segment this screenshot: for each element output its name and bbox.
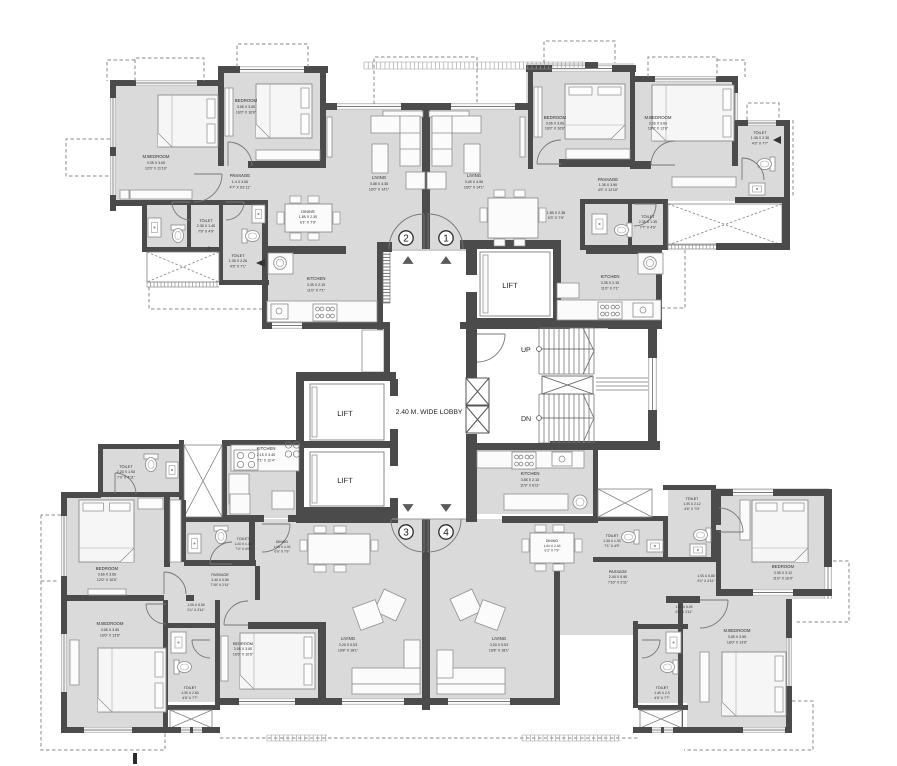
svg-text:10'0" X 13'0": 10'0" X 13'0" xyxy=(727,641,748,645)
svg-text:1.35 X 2.80: 1.35 X 2.80 xyxy=(181,691,198,695)
svg-text:KITCHEN: KITCHEN xyxy=(307,276,326,281)
svg-text:4'6" X 7'0": 4'6" X 7'0" xyxy=(684,507,700,511)
svg-text:2.30 X 1.35: 2.30 X 1.35 xyxy=(603,539,620,543)
svg-text:2.40 X 0.90: 2.40 X 0.90 xyxy=(211,578,228,582)
svg-text:3.05 X 3.95: 3.05 X 3.95 xyxy=(728,635,746,639)
svg-text:6'1" X 2'11": 6'1" X 2'11" xyxy=(697,579,715,583)
svg-text:3.35 X 2.15: 3.35 X 2.15 xyxy=(601,281,619,285)
svg-text:PASSAGE: PASSAGE xyxy=(230,173,250,178)
svg-text:UP: UP xyxy=(521,347,531,354)
svg-text:1.35 X 2.12: 1.35 X 2.12 xyxy=(683,502,700,506)
svg-text:4'3" X 7'1": 4'3" X 7'1" xyxy=(230,264,247,268)
svg-text:2.20 X 1.50: 2.20 X 1.50 xyxy=(117,470,135,474)
svg-text:4'5" X 12'10": 4'5" X 12'10" xyxy=(598,188,619,192)
svg-text:10'0" X 14'1": 10'0" X 14'1" xyxy=(464,186,485,190)
svg-text:3.08 X 4.30: 3.08 X 4.30 xyxy=(370,182,388,186)
svg-text:4'3" X 7'7": 4'3" X 7'7" xyxy=(752,141,769,145)
svg-text:PASSAGE: PASSAGE xyxy=(211,573,229,577)
svg-text:TOILET: TOILET xyxy=(199,218,213,223)
svg-text:10'0" X 12'0": 10'0" X 12'0" xyxy=(648,127,669,131)
svg-text:7'9" X 4'9": 7'9" X 4'9" xyxy=(198,229,215,233)
svg-text:2.30 X 1.45: 2.30 X 1.45 xyxy=(197,224,215,228)
svg-text:2.15 X 3.45: 2.15 X 3.45 xyxy=(257,453,275,457)
svg-text:7'2" X 4'5": 7'2" X 4'5" xyxy=(236,547,252,551)
svg-text:TOILET: TOILET xyxy=(753,130,767,135)
svg-text:LIVING: LIVING xyxy=(372,175,387,180)
svg-text:TOILET: TOILET xyxy=(686,497,700,501)
svg-text:6'5" X 7'9": 6'5" X 7'9" xyxy=(275,550,291,554)
svg-text:6'3" X 7'9": 6'3" X 7'9" xyxy=(548,216,565,220)
svg-text:1.50 X 0.90: 1.50 X 0.90 xyxy=(187,603,204,607)
svg-text:10'8" X 18'1": 10'8" X 18'1" xyxy=(489,649,510,653)
svg-text:11'0" X 10'3": 11'0" X 10'3" xyxy=(773,577,794,581)
svg-text:2.40 M. WIDE LOBBY: 2.40 M. WIDE LOBBY xyxy=(396,409,463,416)
svg-text:KITCHEN: KITCHEN xyxy=(257,446,276,451)
svg-text:3.65 X 3.05: 3.65 X 3.05 xyxy=(98,572,116,576)
svg-text:3.05 X 3.05: 3.05 X 3.05 xyxy=(546,121,564,125)
svg-text:M.BEDROOM: M.BEDROOM xyxy=(645,115,672,120)
svg-text:TOILET: TOILET xyxy=(231,253,245,258)
svg-text:3.35 X 2.15: 3.35 X 2.15 xyxy=(307,283,325,287)
svg-text:LIFT: LIFT xyxy=(502,281,518,290)
svg-text:6'1" X 7'9": 6'1" X 7'9" xyxy=(300,220,317,224)
svg-text:M.BEDROOM: M.BEDROOM xyxy=(97,621,124,626)
svg-text:3.85 X 2.10: 3.85 X 2.10 xyxy=(521,478,539,482)
svg-text:12'0" X 10'0": 12'0" X 10'0" xyxy=(97,578,118,582)
svg-text:BEDROOM: BEDROOM xyxy=(544,115,567,120)
svg-text:11'0" X 7'1": 11'0" X 7'1" xyxy=(307,289,326,293)
svg-text:PASSAGE: PASSAGE xyxy=(598,177,618,182)
svg-text:2.40 X 0.90: 2.40 X 0.90 xyxy=(609,575,627,579)
svg-text:7'1" X 4'5": 7'1" X 4'5" xyxy=(604,544,620,548)
svg-text:TOILET: TOILET xyxy=(606,534,620,538)
svg-text:TOILET: TOILET xyxy=(237,537,250,541)
svg-text:1.55 X 0.95: 1.55 X 0.95 xyxy=(675,605,692,609)
svg-text:7'10" X 2'11": 7'10" X 2'11" xyxy=(608,580,629,584)
svg-text:10'8" X 18'1": 10'8" X 18'1" xyxy=(338,649,359,653)
svg-text:BEDROOM: BEDROOM xyxy=(772,564,795,569)
svg-text:12'0" X 11'10": 12'0" X 11'10" xyxy=(145,167,168,171)
svg-text:TOILET: TOILET xyxy=(656,686,670,690)
svg-text:DINING: DINING xyxy=(301,209,315,214)
svg-text:TOILET: TOILET xyxy=(184,686,198,690)
svg-text:3.05 X 3.05: 3.05 X 3.05 xyxy=(234,647,252,651)
svg-text:LIFT: LIFT xyxy=(337,409,353,418)
svg-text:1.45 X 2.5: 1.45 X 2.5 xyxy=(654,691,670,695)
svg-text:TOILET: TOILET xyxy=(119,464,133,469)
svg-text:10'0" X 10'0": 10'0" X 10'0" xyxy=(236,111,257,115)
svg-text:BEDROOM: BEDROOM xyxy=(233,641,253,646)
svg-text:2.20 X 1.35: 2.20 X 1.35 xyxy=(235,542,252,546)
svg-text:2.35 X 1.35: 2.35 X 1.35 xyxy=(639,220,657,224)
svg-text:3.05 X 3.65: 3.05 X 3.65 xyxy=(649,121,667,125)
svg-text:LIFT: LIFT xyxy=(337,476,353,485)
svg-text:4: 4 xyxy=(443,528,449,539)
svg-text:LIVING: LIVING xyxy=(341,636,356,641)
svg-text:11'0" X 7'1": 11'0" X 7'1" xyxy=(601,287,620,291)
svg-text:10'0" X 14'1": 10'0" X 14'1" xyxy=(369,188,390,192)
svg-text:PASSAGE: PASSAGE xyxy=(609,569,628,574)
svg-text:LIVING: LIVING xyxy=(492,636,507,641)
svg-text:11'9" X 6'11": 11'9" X 6'11" xyxy=(520,484,540,488)
svg-text:6'3" X 7'9": 6'3" X 7'9" xyxy=(545,549,561,553)
svg-text:7'7" X 4'5": 7'7" X 4'5" xyxy=(640,225,657,229)
svg-text:3.05 X 3.95: 3.05 X 3.95 xyxy=(101,628,119,632)
svg-text:BEDROOM: BEDROOM xyxy=(235,98,258,103)
svg-text:LIVING: LIVING xyxy=(467,173,482,178)
svg-text:3.35 X 3.12: 3.35 X 3.12 xyxy=(774,571,792,575)
svg-text:3.20 X 5.53: 3.20 X 5.53 xyxy=(339,643,357,647)
svg-text:3.20 X 5.53: 3.20 X 5.53 xyxy=(490,643,508,647)
svg-text:1.30 X 2.20: 1.30 X 2.20 xyxy=(229,259,247,263)
svg-text:1.80 X 2.38: 1.80 X 2.38 xyxy=(547,211,565,215)
svg-text:4'7" X 9'2 11": 4'7" X 9'2 11" xyxy=(229,186,251,190)
svg-text:1.85 X 2.35: 1.85 X 2.35 xyxy=(299,215,317,219)
svg-text:DINING: DINING xyxy=(276,540,289,544)
svg-text:KITCHEN: KITCHEN xyxy=(601,274,620,279)
svg-text:5'1" X 2'11": 5'1" X 2'11" xyxy=(187,608,205,612)
svg-text:4'9" X 7'7": 4'9" X 7'7" xyxy=(182,696,198,700)
svg-text:7'10" X 2'11": 7'10" X 2'11" xyxy=(211,583,231,587)
svg-text:10'0" X 13'0": 10'0" X 13'0" xyxy=(100,634,121,638)
svg-text:1.30 X 2.30: 1.30 X 2.30 xyxy=(751,136,769,140)
svg-text:10'0" X 10'0": 10'0" X 10'0" xyxy=(233,652,254,656)
svg-text:4'9" X 7'7": 4'9" X 7'7" xyxy=(654,696,670,700)
svg-text:1.95 X 2.35: 1.95 X 2.35 xyxy=(274,545,291,549)
svg-text:1.4 X 3.00: 1.4 X 3.00 xyxy=(232,180,248,184)
svg-text:DN: DN xyxy=(521,416,531,423)
svg-text:1: 1 xyxy=(443,234,449,245)
svg-text:7'1" X 11'4": 7'1" X 11'4" xyxy=(257,459,276,463)
svg-text:DINING: DINING xyxy=(546,539,559,543)
svg-text:1.35 X 3.90: 1.35 X 3.90 xyxy=(599,183,617,187)
svg-text:6'1" X 2'11": 6'1" X 2'11" xyxy=(675,610,693,614)
svg-text:3.05 X 3.05: 3.05 X 3.05 xyxy=(237,105,255,109)
svg-text:M.BEDROOM: M.BEDROOM xyxy=(143,154,170,159)
svg-text:10'0" X 10'0": 10'0" X 10'0" xyxy=(545,127,566,131)
svg-text:KITCHEN: KITCHEN xyxy=(521,471,540,476)
svg-text:3.35 X 3.60: 3.35 X 3.60 xyxy=(147,161,165,165)
svg-text:7'3" X 4'11": 7'3" X 4'11" xyxy=(117,475,136,479)
svg-text:M.BEDROOM: M.BEDROOM xyxy=(724,628,751,633)
svg-text:1.55 X 0.90: 1.55 X 0.90 xyxy=(697,574,714,578)
svg-text:TOILET: TOILET xyxy=(641,214,655,219)
svg-text:BEDROOM: BEDROOM xyxy=(96,566,119,571)
svg-text:1.80 X 2.38: 1.80 X 2.38 xyxy=(544,544,561,548)
svg-text:3: 3 xyxy=(403,528,409,539)
svg-text:3.05 X 4.90: 3.05 X 4.90 xyxy=(465,180,483,184)
svg-text:2: 2 xyxy=(403,234,409,245)
